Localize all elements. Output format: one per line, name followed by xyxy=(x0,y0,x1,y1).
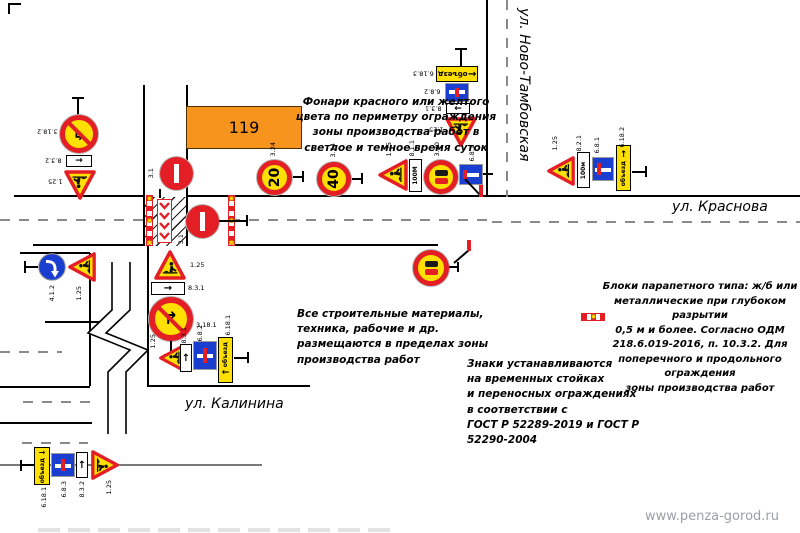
car-black-icon xyxy=(425,261,438,267)
note-parapet: Блоки парапетного типа: ж/б или металлич… xyxy=(600,280,800,396)
no-left-turn-sign: ↰ xyxy=(60,115,98,153)
speed-value: 20 xyxy=(267,168,283,187)
building-119: 119 xyxy=(186,106,302,149)
sign-code-label: 3.1 xyxy=(148,168,155,178)
traffic-works-scheme: 119 3.1 3.1 ↰ 3.18.2 → 8.3.2 1.25 объезд… xyxy=(0,0,800,533)
arrow-icon: ← xyxy=(222,368,230,378)
building-number: 119 xyxy=(229,118,260,137)
sign-pole xyxy=(77,99,79,116)
red-flag-marker xyxy=(479,185,483,197)
no-overtaking-sign xyxy=(424,160,458,194)
warning-lamp-icon xyxy=(591,314,596,319)
sign-pole-end xyxy=(246,215,248,226)
sign-code-label: 6.18.1 xyxy=(41,487,48,508)
sign-code-label: 6.8.1 xyxy=(594,137,601,154)
road-edge xyxy=(143,85,145,197)
sign-code-label: 8.3.1 xyxy=(181,327,188,344)
sign-pole xyxy=(234,357,248,359)
sign-pole xyxy=(460,50,462,67)
sign-pole xyxy=(219,220,247,222)
street-name-krasnova: ул. Краснова xyxy=(672,199,768,215)
street-name-novo-tambovskaya: ул. Ново-Тамбовская xyxy=(516,8,532,208)
sign-code-label: 3.1 xyxy=(178,234,185,244)
speed-limit-40-sign: 40 xyxy=(317,162,351,196)
lane-line xyxy=(0,386,90,388)
road-edge-south xyxy=(33,244,145,246)
car-red-icon xyxy=(435,178,448,184)
roadworks-warning-sign xyxy=(90,450,120,480)
street-name-kalinina: ул. Калинина xyxy=(185,396,284,412)
sign-code-label: 1.25 xyxy=(150,334,157,348)
arrow-icon: → xyxy=(164,283,172,294)
sign-pole xyxy=(26,266,38,268)
sign-code-label: 1.25 xyxy=(76,286,83,300)
parapet-block-chevrons xyxy=(157,199,172,243)
watermark: www.penza-gorod.ru xyxy=(645,509,779,524)
detour-sign: → объезд xyxy=(34,447,50,485)
distance-value: 100М xyxy=(412,166,419,185)
cars-icon xyxy=(435,170,448,184)
arrow-icon: ↑ xyxy=(620,150,628,160)
distance-plate: 100М xyxy=(409,159,422,192)
no-entry-sign xyxy=(186,205,219,238)
lane-line xyxy=(147,385,310,387)
cars-icon xyxy=(425,261,438,275)
arrow-icon: → xyxy=(468,69,476,80)
sign-pole xyxy=(22,464,34,466)
direction-plate: → xyxy=(151,282,185,295)
sign-code-label: 1.25 xyxy=(48,178,62,185)
sign-pole xyxy=(483,173,493,175)
sign-code-label: 1.25 xyxy=(106,480,113,494)
sign-code-label: 1.25 xyxy=(552,136,559,150)
sign-pole-end xyxy=(361,173,363,184)
no-entry-sign xyxy=(160,157,193,190)
warning-lamp-icon xyxy=(147,240,152,245)
sign-code-label: 8.2.1 xyxy=(576,135,583,152)
direction-plate: → xyxy=(66,155,92,167)
sign-code-label: 4.1.2 xyxy=(49,285,56,302)
center-dash-vertical xyxy=(506,0,508,197)
center-dash xyxy=(0,219,145,221)
warning-lamp-icon xyxy=(229,196,234,201)
lane-dash xyxy=(22,442,88,444)
roadworks-warning-sign xyxy=(546,156,576,186)
no-entry-bar-icon xyxy=(200,212,205,230)
car-black-icon xyxy=(435,170,448,176)
distance-plate: 100м xyxy=(577,152,590,188)
direction-plate: ↑ xyxy=(180,344,192,372)
sign-code-label: 8.3.2 xyxy=(79,481,86,498)
sign-code-label: 6.8.3 xyxy=(61,481,68,498)
center-dash xyxy=(492,221,800,223)
sign-code-label: 6.18.1 xyxy=(225,315,232,336)
roadworks-warning-sign xyxy=(152,249,188,281)
detour-text: объезд xyxy=(39,458,46,483)
car-red-icon xyxy=(425,269,438,275)
lane-dash xyxy=(0,351,62,353)
roadworks-warning-sign xyxy=(377,159,409,191)
dead-end-sign xyxy=(52,454,74,476)
sign-pole-end xyxy=(247,352,249,363)
lane-line xyxy=(0,422,92,424)
arrow-icon: → xyxy=(75,156,83,166)
note-lamps: Фонари красного или желтого цвета по пер… xyxy=(290,95,502,156)
truncated-text-artifact xyxy=(38,528,398,532)
sign-code-label: 8.3.2 xyxy=(45,157,62,164)
building-edge xyxy=(486,195,800,197)
sign-code-label: 6.18.2 xyxy=(619,127,626,148)
detour-text: объезд xyxy=(620,161,627,186)
sign-code-label: 6.8.2 xyxy=(424,88,441,95)
detour-text: объезд xyxy=(222,342,229,367)
arrow-icon: ↑ xyxy=(78,460,86,471)
detour-sign: ↑ объезд xyxy=(616,145,631,191)
warning-lamp-icon xyxy=(147,218,152,223)
direction-plate: ↑ xyxy=(76,452,88,478)
dead-end-sign xyxy=(593,158,613,180)
detour-sign: объезд → xyxy=(436,66,478,82)
sign-code-label: 3.18.2 xyxy=(37,128,58,135)
road-edge-south xyxy=(230,244,438,246)
sign-code-label: 8.3.1 xyxy=(188,285,205,292)
warning-lamp-icon xyxy=(147,196,152,201)
no-entry-bar-icon xyxy=(174,164,179,182)
arrow-icon: ↑ xyxy=(182,353,190,364)
no-overtaking-sign xyxy=(413,250,449,286)
dead-end-red-icon xyxy=(61,459,65,470)
roadworks-warning-sign xyxy=(64,169,96,201)
sign-pole xyxy=(632,171,646,173)
speed-limit-20-sign: 20 xyxy=(257,160,292,195)
lane-dash xyxy=(23,401,90,403)
roadworks-warning-sign xyxy=(67,252,97,282)
sign-code-label: 1.25 xyxy=(190,262,204,269)
dead-end-red-icon xyxy=(203,348,207,362)
sign-pole xyxy=(159,189,161,198)
detour-sign: объезд ← xyxy=(218,337,233,383)
sign-code-label: 3.24 xyxy=(270,142,277,156)
sign-code-label: 6.18.3 xyxy=(413,70,434,77)
mandatory-direction-sign xyxy=(38,253,66,281)
distance-value: 100м xyxy=(580,161,587,178)
corner-mark-h xyxy=(8,3,21,5)
sign-pole-end xyxy=(645,166,647,177)
dead-end-sign xyxy=(194,342,216,369)
red-flag-marker xyxy=(467,240,471,251)
center-dash xyxy=(230,219,487,221)
dead-end-red-icon xyxy=(597,163,601,174)
arrow-icon: → xyxy=(39,448,46,457)
sign-code-label: 6.8.2 xyxy=(197,325,204,342)
detour-text: объезд xyxy=(438,70,467,78)
warning-lamp-icon xyxy=(229,240,234,245)
speed-value: 40 xyxy=(326,169,342,188)
sign-pole-end xyxy=(302,171,304,182)
